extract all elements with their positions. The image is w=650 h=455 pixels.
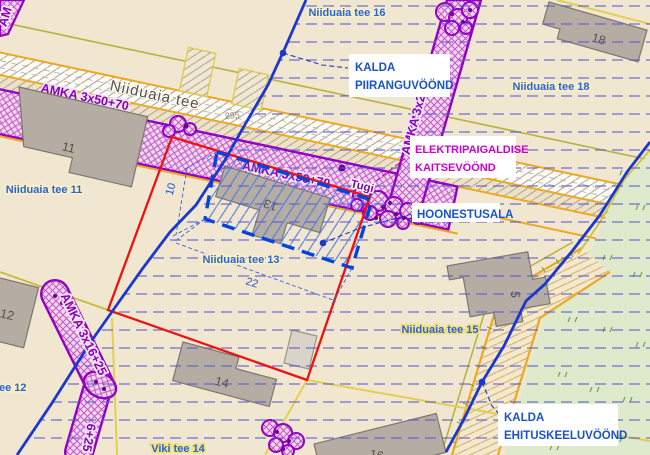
parcel-label-tee-12: ee 12 xyxy=(0,382,27,394)
point-label-295: 295 xyxy=(224,110,240,121)
plan-canvas: Niiduaia tee AMKA 3x50+70 AMKA 3x50+70 1… xyxy=(0,0,650,455)
callout-text: KALDA xyxy=(355,62,395,74)
callout-hoonestusala: HOONESTUSALA xyxy=(412,203,513,222)
parcel-label-tee-11: Niiduaia tee 11 xyxy=(6,184,82,196)
callout-kalda-piiranguvoond: KALDA PIIRANGUVÖÖND xyxy=(349,54,453,97)
parcel-label-tee-16: Niiduaia tee 16 xyxy=(308,7,385,19)
detail-plan-map: Niiduaia tee AMKA 3x50+70 AMKA 3x50+70 1… xyxy=(0,0,650,455)
callout-text: EHITUSKEELUVÖÖND xyxy=(504,429,627,442)
street-label-viki-tee-14: Viki tee 14 xyxy=(151,443,205,455)
parcel-label-tee-13: Niiduaia tee 13 xyxy=(202,254,279,266)
callout-text: PIIRANGUVÖÖND xyxy=(355,79,453,92)
callout-kalda-ehituskeeluvoond: KALDA EHITUSKEELUVÖÖND xyxy=(498,404,627,446)
callout-text: KAITSEVÖÖND xyxy=(415,161,496,174)
callout-text: KALDA xyxy=(504,412,544,424)
callout-elektripaigaldise-kaitsevoond: ELEKTRIPAIGALDISE KAITSEVÖÖND xyxy=(410,136,528,178)
callout-text: ELEKTRIPAIGALDISE xyxy=(415,144,528,156)
parcel-label-tee-18: Niiduaia tee 18 xyxy=(512,81,589,93)
callout-text: HOONESTUSALA xyxy=(417,209,513,221)
house-number-5: 5 xyxy=(508,291,523,299)
parcel-label-tee-15: Niiduaia tee 15 xyxy=(401,324,478,336)
